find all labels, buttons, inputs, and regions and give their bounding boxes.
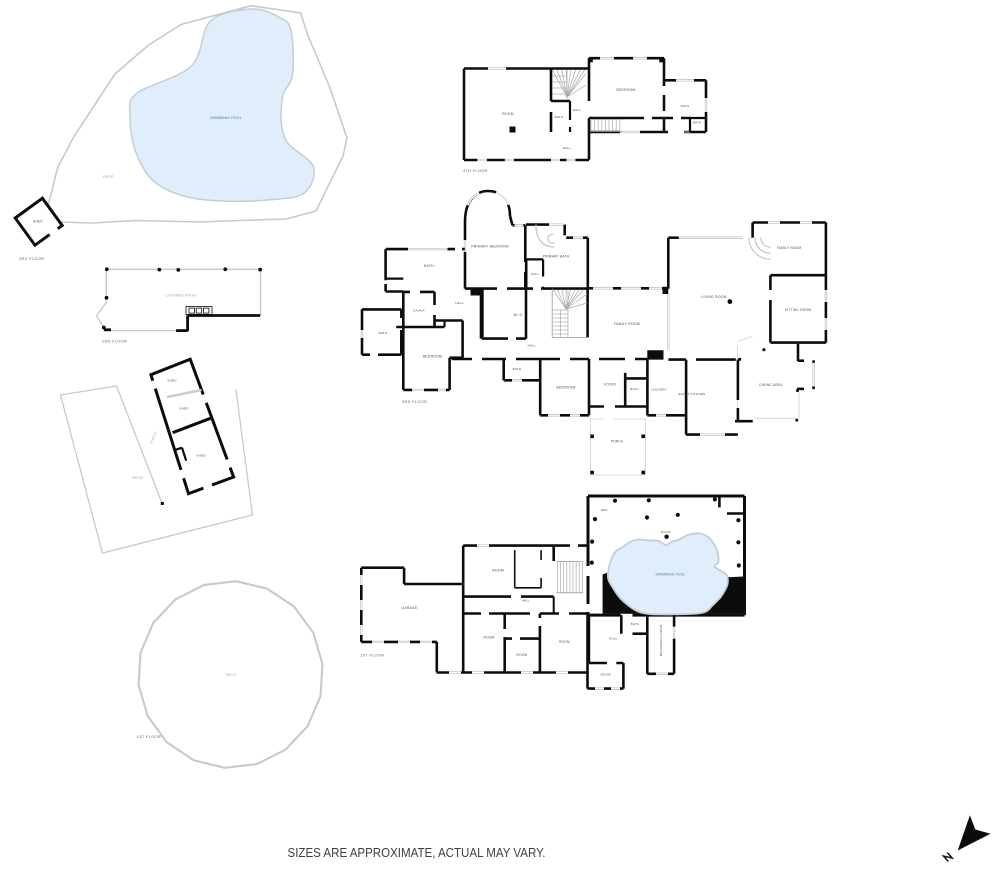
svg-text:PRIMARY BEDROOM: PRIMARY BEDROOM <box>471 245 509 249</box>
svg-text:HALL: HALL <box>455 301 464 305</box>
svg-text:ROOM: ROOM <box>502 112 514 116</box>
svg-text:SWIMMING POOL: SWIMMING POOL <box>656 573 686 577</box>
svg-text:4TH FLOOR: 4TH FLOOR <box>463 168 488 173</box>
svg-text:HALL: HALL <box>531 272 539 276</box>
svg-text:2ND FLOOR: 2ND FLOOR <box>102 339 127 344</box>
svg-text:BATH: BATH <box>631 622 639 626</box>
svg-text:BATH: BATH <box>693 121 701 125</box>
svg-text:SITTING ROOM: SITTING ROOM <box>785 308 811 312</box>
svg-text:BATH: BATH <box>681 104 690 108</box>
svg-text:PATIO: PATIO <box>226 673 237 677</box>
svg-text:MECHANICAL ROOM: MECHANICAL ROOM <box>659 624 663 656</box>
svg-text:ROOM: ROOM <box>517 653 528 657</box>
svg-text:BAR: BAR <box>601 508 608 512</box>
svg-text:BATH: BATH <box>630 387 638 391</box>
svg-text:FOYER: FOYER <box>604 383 617 387</box>
svg-text:1ST FLOOR: 1ST FLOOR <box>137 734 161 739</box>
svg-text:3RD FLOOR: 3RD FLOOR <box>402 399 427 404</box>
svg-text:W.I.C: W.I.C <box>513 313 522 317</box>
svg-text:SAUNA: SAUNA <box>413 309 425 313</box>
svg-text:BATH: BATH <box>379 331 388 335</box>
svg-text:FAMILY ROOM: FAMILY ROOM <box>614 322 640 326</box>
svg-text:HALL: HALL <box>528 344 537 348</box>
svg-text:LIVING ROOM: LIVING ROOM <box>701 295 726 299</box>
svg-text:HALL: HALL <box>573 108 582 112</box>
svg-text:SHED: SHED <box>167 379 177 383</box>
svg-text:BATH: BATH <box>424 264 434 268</box>
svg-text:LAUNDRY: LAUNDRY <box>651 388 667 392</box>
svg-text:HALL: HALL <box>609 637 618 641</box>
svg-text:EAT IN KITCHEN: EAT IN KITCHEN <box>679 392 706 396</box>
svg-text:1ST FLOOR: 1ST FLOOR <box>360 653 384 658</box>
svg-text:SHED: SHED <box>196 454 206 458</box>
svg-text:FAMILY ROOM: FAMILY ROOM <box>777 246 802 250</box>
svg-text:HALL: HALL <box>522 599 531 603</box>
svg-text:BEDROOM: BEDROOM <box>423 355 442 359</box>
svg-text:PATIO: PATIO <box>103 175 114 179</box>
svg-text:PORCH: PORCH <box>611 440 624 444</box>
svg-text:ROOM: ROOM <box>661 530 671 534</box>
svg-text:BATH: BATH <box>513 367 522 371</box>
svg-text:SWIMMING POOL: SWIMMING POOL <box>210 116 242 120</box>
svg-text:COVERED PATIO: COVERED PATIO <box>165 294 196 298</box>
svg-text:PRIMARY BATH: PRIMARY BATH <box>543 255 570 259</box>
svg-text:SIZES ARE APPROXIMATE, ACTUAL: SIZES ARE APPROXIMATE, ACTUAL MAY VARY. <box>288 845 546 860</box>
svg-text:HALL: HALL <box>563 146 572 150</box>
svg-text:ROOM: ROOM <box>601 673 612 677</box>
svg-text:ROOM: ROOM <box>559 640 570 644</box>
svg-text:BEDROOM: BEDROOM <box>616 88 635 92</box>
svg-text:BEDROOM: BEDROOM <box>556 386 575 390</box>
svg-text:PATIO: PATIO <box>132 476 143 480</box>
svg-text:ROOM: ROOM <box>492 569 504 573</box>
svg-text:ROOM: ROOM <box>484 636 495 640</box>
svg-text:3RD FLOOR: 3RD FLOOR <box>19 256 44 261</box>
svg-text:SHED: SHED <box>33 220 43 224</box>
svg-text:BATH: BATH <box>555 115 564 119</box>
svg-text:SHED: SHED <box>179 407 189 411</box>
svg-text:GARAGE: GARAGE <box>401 606 417 610</box>
svg-text:DINING AREA: DINING AREA <box>759 383 783 387</box>
